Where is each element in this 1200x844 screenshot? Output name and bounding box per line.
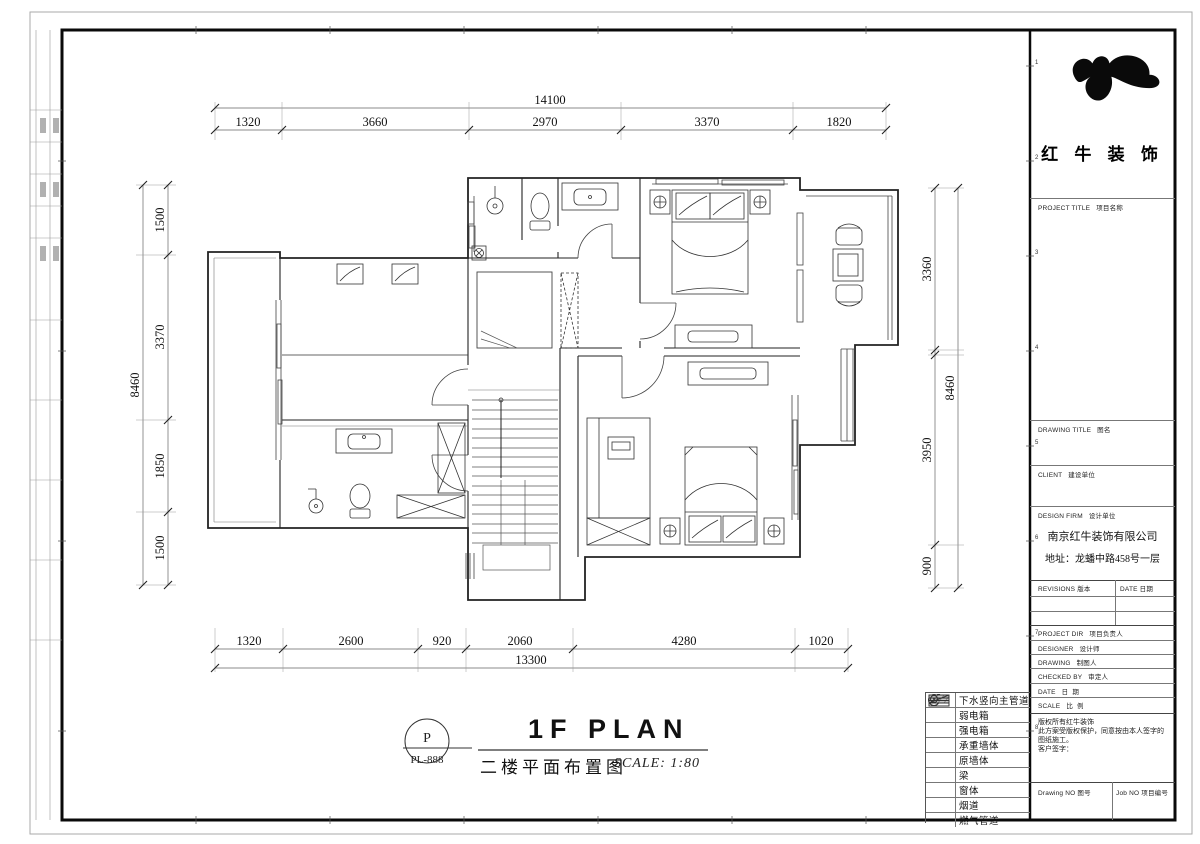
window-slider — [797, 213, 803, 265]
door-bedroom-ul — [432, 369, 468, 405]
legend-label: 烟道 — [956, 798, 979, 812]
window-slider — [793, 420, 797, 466]
plan-scale: SCALE: 1:80 — [614, 756, 700, 772]
stamp-code: PL-888 — [411, 754, 445, 766]
copyright-line1: 版权所有红牛装饰 — [1038, 718, 1094, 726]
dim-bottom: 2060 — [508, 634, 533, 648]
dim-bottom: 1320 — [237, 634, 262, 648]
date-label: DATE 日 期 — [1038, 686, 1079, 696]
doors — [432, 224, 676, 491]
nightstand — [650, 190, 670, 214]
dim-right: 900 — [920, 557, 934, 576]
legend-row: 窗体 — [926, 783, 1030, 798]
door-bath-top — [578, 224, 612, 258]
dim-right-total: 8460 — [943, 376, 957, 401]
plan-title-en: 1F PLAN — [528, 714, 690, 745]
legend-row: R 弱电箱 — [926, 708, 1030, 723]
wardrobe — [438, 423, 465, 493]
dim-bottom: 1020 — [809, 634, 834, 648]
grid-ticks — [58, 26, 1034, 824]
dim-top: 3370 — [695, 115, 720, 129]
dimension-text: 14100 1320 3660 2970 3370 1820 1320 2600… — [128, 93, 957, 667]
furniture — [282, 183, 863, 545]
window-slider — [277, 324, 281, 368]
project-dir-label: PROJECT DIR 项目负责人 — [1038, 628, 1123, 638]
gas-pipe-icon — [926, 813, 956, 827]
discipline-strip-text — [40, 118, 59, 261]
dim-bottom-total: 13300 — [515, 653, 546, 667]
firm-address: 地址：龙蟠中路458号一层 — [1030, 550, 1175, 565]
dim-right: 3950 — [920, 438, 934, 463]
window-slider — [656, 179, 718, 184]
weak-electric-box-icon: R — [926, 708, 956, 722]
balcony-table — [833, 249, 863, 281]
title-block: 红 牛 装 饰 PROJECT TITLE 项目名称 DRAWING TITLE… — [1030, 30, 1175, 820]
bearing-wall-icon — [926, 738, 956, 752]
dim-left: 1500 — [153, 208, 167, 233]
door-bedroom2 — [622, 356, 664, 398]
nightstand — [660, 518, 680, 544]
drawing-no-label: Drawing NO 图号 — [1038, 787, 1091, 797]
staircase — [472, 272, 558, 570]
designer-label: DESIGNER 设计师 — [1038, 643, 1100, 653]
vanity-bottom — [336, 429, 392, 453]
tv-cabinet — [675, 325, 752, 348]
plan-walls — [208, 178, 898, 600]
original-wall-icon — [926, 753, 956, 767]
balcony-chair — [836, 285, 862, 306]
legend-row: 原墙体 — [926, 753, 1030, 768]
legend-row: 燃气管道 — [926, 813, 1030, 827]
nightstand — [764, 518, 784, 544]
vanity-top — [562, 183, 618, 210]
client-label: CLIENT 建设单位 — [1038, 469, 1095, 479]
scale-label: SCALE 比 例 — [1038, 700, 1084, 710]
dim-left: 3370 — [153, 325, 167, 350]
legend-label: 原墙体 — [956, 753, 989, 767]
dim-bottom: 4280 — [672, 634, 697, 648]
legend-row: 承重墙体 — [926, 738, 1030, 753]
drawing-sheet: 1 2 3 4 5 6 7 8 — [0, 0, 1200, 844]
bed2 — [685, 447, 757, 545]
copyright-line2: 此方案受版权保护，同意按由本人签字的图纸施工。 — [1038, 727, 1164, 744]
pillow — [337, 264, 363, 284]
pillow — [392, 264, 418, 284]
door-bedroom1 — [640, 303, 676, 339]
project-title-label: PROJECT TITLE 项目名称 — [1038, 202, 1123, 212]
stairwell-opening — [477, 272, 552, 348]
legend: 下水竖向主管道 R 弱电箱 P 强电箱 承重墙体 原墙体 梁 窗体 烟道 — [925, 692, 1030, 823]
toilet-bottom — [350, 484, 370, 518]
dim-bottom: 2600 — [339, 634, 364, 648]
plan-title-cn: 二楼平面布置图 — [480, 753, 627, 778]
client-sign-label: 客户签字： — [1038, 745, 1170, 754]
wardrobe — [397, 495, 465, 518]
date-col-label: DATE 日期 — [1120, 583, 1153, 593]
dim-bottom: 920 — [433, 634, 452, 648]
flue-icon — [926, 798, 956, 812]
dim-left: 1850 — [153, 454, 167, 479]
dim-top: 1320 — [236, 115, 261, 129]
company-name: 红 牛 装 饰 — [1030, 140, 1175, 165]
tv-cabinet — [688, 362, 768, 385]
legend-row: 烟道 — [926, 798, 1030, 813]
master-bed — [672, 190, 748, 294]
legend-label: 燃气管道 — [956, 813, 999, 827]
toilet-top — [530, 193, 550, 230]
strong-electric-box-icon: P — [926, 723, 956, 737]
dim-left-total: 8460 — [128, 373, 142, 398]
legend-label: 承重墙体 — [956, 738, 999, 752]
drawing-by-label: DRAWING 制图人 — [1038, 657, 1097, 667]
desk — [587, 418, 650, 518]
window-slider — [794, 470, 798, 514]
window-symbol-icon — [926, 783, 956, 797]
beam-icon — [926, 768, 956, 782]
balcony-chair — [836, 224, 862, 245]
shower-top — [487, 186, 503, 214]
wardrobe — [587, 518, 650, 545]
legend-label: 弱电箱 — [956, 708, 989, 722]
legend-label: 强电箱 — [956, 723, 989, 737]
dim-top: 1820 — [827, 115, 852, 129]
discipline-strip — [30, 30, 62, 820]
legend-row: 梁 — [926, 768, 1030, 783]
legend-row: P 强电箱 — [926, 723, 1030, 738]
legend-label: 梁 — [956, 768, 969, 782]
dimension-lines — [136, 102, 964, 672]
drawing-title-label: DRAWING TITLE 图名 — [1038, 424, 1111, 434]
window-slider — [797, 270, 803, 322]
dim-top: 2970 — [533, 115, 558, 129]
bay-window — [841, 349, 855, 441]
dim-right: 3360 — [920, 257, 934, 282]
shower-bottom — [308, 489, 323, 513]
legend-label: 窗体 — [956, 783, 979, 797]
hall-cabinet — [561, 273, 578, 348]
balcony-right-window — [806, 196, 892, 340]
job-no-label: Job NO 项目编号 — [1116, 787, 1168, 797]
wall-inner-lines — [214, 258, 560, 522]
design-firm-label: DESIGN FIRM 设计单位 — [1038, 510, 1116, 520]
nightstand — [750, 190, 770, 214]
firm-name: 南京红牛装饰有限公司 — [1030, 528, 1175, 544]
revisions-label: REVISIONS 版本 — [1038, 583, 1091, 593]
checked-by-label: CHECKED BY 审定人 — [1038, 671, 1108, 681]
dim-top: 3660 — [363, 115, 388, 129]
legend-label: 下水竖向主管道 — [956, 693, 1029, 707]
dim-top-total: 14100 — [534, 93, 565, 107]
stamp-letter: P — [423, 731, 431, 746]
dim-left: 1500 — [153, 536, 167, 561]
outer-wall — [208, 178, 898, 600]
interior-walls — [280, 178, 800, 600]
door-bath-bottom — [432, 455, 468, 491]
